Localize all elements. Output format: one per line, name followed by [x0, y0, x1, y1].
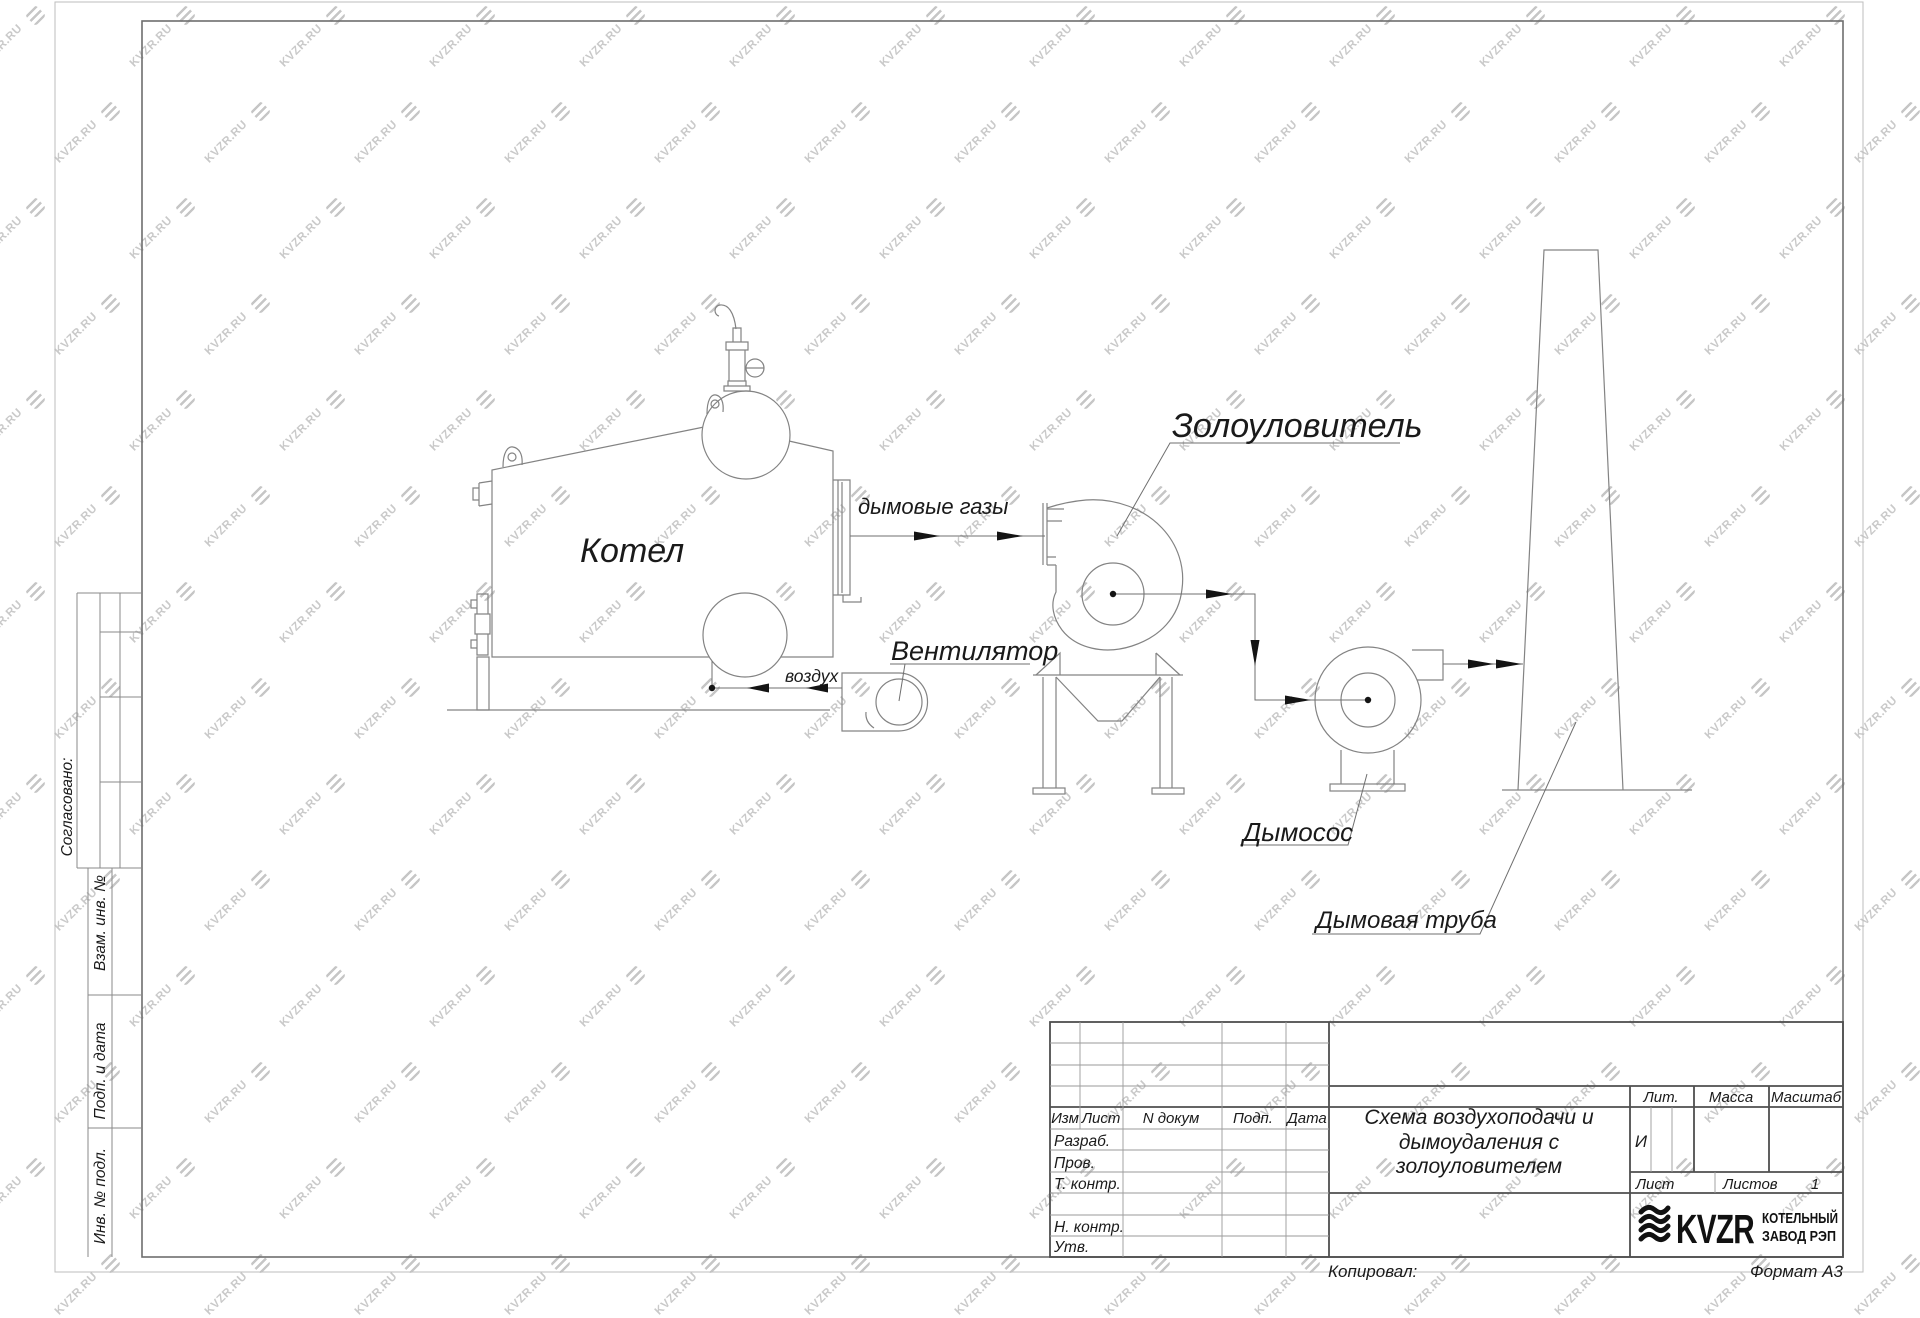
- sign-date-label: Подп. и дата: [92, 1022, 109, 1119]
- smoke-exhauster: [1315, 647, 1443, 791]
- boiler-top-drum: [702, 391, 790, 479]
- mass-label: Масса: [1709, 1089, 1753, 1106]
- down-arrow: [1251, 640, 1260, 666]
- inv-orig-label: Инв. № подл.: [92, 1148, 109, 1244]
- row-developed: Разраб.: [1054, 1133, 1110, 1150]
- flue-gases-label: дымовые газы: [858, 494, 1008, 519]
- chimney-label: Дымовая труба: [1313, 907, 1497, 934]
- sheets-label: Листов: [1722, 1176, 1778, 1193]
- company-logo: KVZR КОТЕЛЬНЫЙ ЗАВОД РЭП: [1641, 1206, 1838, 1252]
- col-list: Лист: [1081, 1110, 1121, 1127]
- ash-catcher-label: Золоуловитель: [1172, 407, 1423, 445]
- left-margin-columns: Согласовано: Взам. инв. № Подп. и дата И…: [59, 593, 142, 1257]
- col-doc: N докум: [1143, 1110, 1200, 1127]
- sheets-value: 1: [1811, 1176, 1819, 1193]
- boiler-label: Котел: [580, 532, 684, 570]
- kvzr-logo-icon: [1641, 1207, 1668, 1239]
- drawing-title-line1: Схема воздухоподачи и: [1364, 1106, 1594, 1129]
- fan: [842, 673, 928, 731]
- drawing-title-line2: дымоудаления с: [1399, 1131, 1560, 1154]
- row-tech-control: Т. контр.: [1054, 1176, 1121, 1193]
- lit-value: И: [1635, 1132, 1648, 1151]
- row-checked: Пров.: [1054, 1155, 1095, 1172]
- drawing-title-line3: золоуловителем: [1395, 1155, 1562, 1178]
- ash-out-arrow: [1206, 590, 1232, 599]
- chimney-arrow-2: [1496, 660, 1522, 669]
- exhauster-in-arrow: [1285, 696, 1311, 705]
- drawing-sheet: { "sheet": { "watermark_text": "KVZR.RU"…: [0, 0, 1920, 1280]
- col-izm: Изм: [1051, 1110, 1079, 1127]
- sheet-label: Лист: [1635, 1176, 1675, 1193]
- col-date: Дата: [1285, 1110, 1327, 1127]
- company-name-line1: КОТЕЛЬНЫЙ: [1762, 1209, 1838, 1227]
- chimney: [1502, 250, 1692, 790]
- kvzr-logo-text: KVZR: [1676, 1206, 1754, 1252]
- fan-label: Вентилятор: [891, 636, 1058, 666]
- scale-label: Масштаб: [1771, 1089, 1842, 1106]
- col-sign: Подп.: [1233, 1110, 1273, 1127]
- agreed-label: Согласовано:: [59, 758, 76, 857]
- smoke-exhauster-label: Дымосос: [1240, 817, 1353, 847]
- title-block: Изм Лист N докум Подп. Дата Разраб. Пров…: [1050, 1022, 1843, 1257]
- flue-arrow-2: [997, 532, 1023, 541]
- row-norm-control: Н. контр.: [1054, 1219, 1124, 1236]
- copied-label: Копировал:: [1328, 1262, 1418, 1280]
- air-label: воздух: [785, 666, 839, 686]
- boiler-bottom-drum: [703, 593, 787, 677]
- boiler: [447, 305, 861, 710]
- row-approved: Утв.: [1053, 1239, 1089, 1256]
- air-arrow-1: [747, 684, 769, 693]
- subst-inv-label: Взам. инв. №: [92, 875, 109, 971]
- company-name-line2: ЗАВОД РЭП: [1762, 1228, 1836, 1245]
- format-label: Формат А3: [1750, 1262, 1844, 1280]
- engineering-drawing: Согласовано: Взам. инв. № Подп. и дата И…: [0, 0, 1920, 1280]
- lit-label: Лит.: [1642, 1089, 1678, 1106]
- flue-arrow-1: [914, 532, 940, 541]
- chimney-arrow-1: [1468, 660, 1494, 669]
- safety-valve: [715, 305, 764, 391]
